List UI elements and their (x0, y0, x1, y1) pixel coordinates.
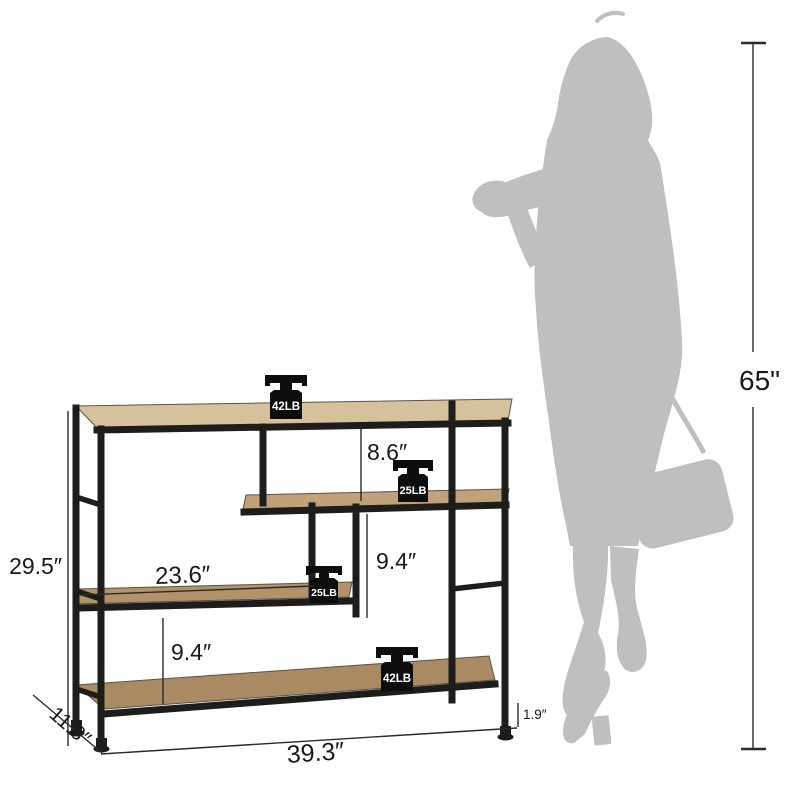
hair-wisp (597, 13, 623, 21)
silhouette-body (535, 37, 683, 546)
lower-gap-label: 9.4″ (171, 639, 211, 665)
overall-height-label: 29.5″ (9, 553, 62, 579)
silhouette-back-leg (610, 546, 647, 672)
weight-label: 42LB (383, 673, 411, 685)
left-panel-crossbar-upper (76, 497, 101, 505)
person-height-label: 65" (739, 365, 780, 396)
weight-label: 25LB (400, 485, 427, 497)
silhouette-heel (592, 715, 612, 746)
console-table (69, 399, 514, 753)
weight-badge-third-shelf: 25LB (306, 566, 342, 603)
product-dimension-diagram: 42LB 25LB 25LB 42LB (0, 0, 800, 800)
diagram-canvas: 42LB 25LB 25LB 42LB (0, 0, 800, 800)
bag-strap-right (669, 392, 704, 453)
foot-height-label: 1.9″ (523, 707, 547, 722)
right-panel-crossbar (452, 583, 505, 589)
overall-depth-label: 11.8″ (45, 702, 96, 750)
weight-badge-top-shelf: 42LB (265, 375, 307, 419)
foot-pad-front-right (498, 734, 514, 741)
weight-label: 42LB (272, 401, 300, 413)
weight-badge-bottom-shelf: 42LB (376, 647, 418, 691)
overall-width-label: 39.3″ (286, 737, 345, 769)
top-gap-label: 8.6″ (367, 439, 407, 465)
weight-label: 25LB (311, 587, 337, 599)
weight-badge-second-shelf: 25LB (393, 460, 433, 502)
foot-pad-front-left (94, 746, 110, 753)
middle-shelf-length-label: 23.6″ (155, 561, 212, 590)
middle-gap-label: 9.4″ (376, 548, 416, 574)
silhouette-bag-hand (658, 379, 676, 397)
